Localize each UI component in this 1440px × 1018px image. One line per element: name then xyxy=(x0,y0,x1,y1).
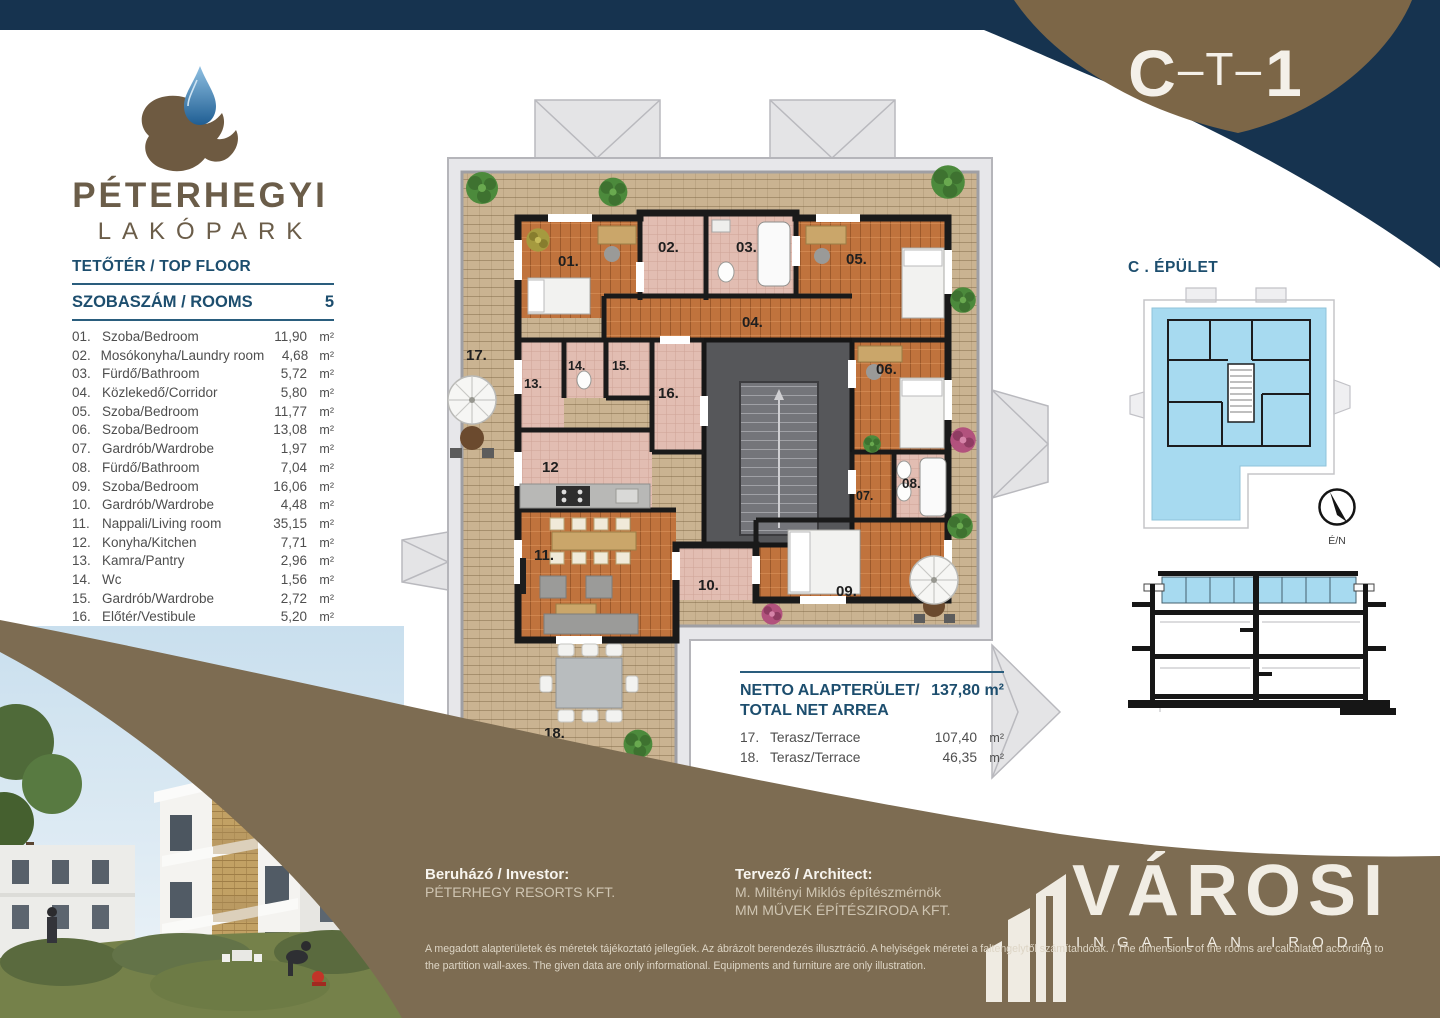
investor-label: Beruházó / Investor: xyxy=(425,866,725,883)
divider xyxy=(72,319,334,321)
room-row: 15.Gardrób/Wardrobe2,72m² xyxy=(72,591,334,610)
room-name: Fürdő/Bathroom xyxy=(102,366,261,381)
building-section xyxy=(1128,571,1396,715)
room-row: 08.Fürdő/Bathroom7,04m² xyxy=(72,460,334,479)
plan-label-05: 05. xyxy=(846,251,867,268)
varosi-wordmark: VÁROSI xyxy=(1072,850,1432,932)
room-row: 11.Nappali/Living room35,15m² xyxy=(72,516,334,535)
room-number: 14. xyxy=(72,572,102,587)
room-unit: m² xyxy=(308,349,334,363)
room-unit: m² xyxy=(307,386,334,400)
plan-label-15: 15. xyxy=(612,359,629,373)
plan-label-02: 02. xyxy=(658,239,679,256)
room-name: Szoba/Bedroom xyxy=(102,404,261,419)
room-area: 16,06 xyxy=(261,479,307,494)
plan-label-17: 17. xyxy=(466,347,487,364)
room-area: 4,68 xyxy=(264,348,308,363)
plan-label-01: 01. xyxy=(558,253,579,270)
room-number: 13. xyxy=(72,553,102,568)
room-name: Szoba/Bedroom xyxy=(102,329,261,344)
room-row: 01.Szoba/Bedroom11,90m² xyxy=(72,329,334,348)
terrace-row: 18.Terasz/Terrace46,35m² xyxy=(740,750,1004,770)
varosi-brand: VÁROSI INGATLAN IRODA xyxy=(1072,850,1432,951)
investor-block: Beruházó / Investor: PÉTERHEGY RESORTS K… xyxy=(425,866,725,901)
net-area-title: NETTO ALAPTERÜLET/ xyxy=(740,681,920,701)
room-area: 7,04 xyxy=(261,460,307,475)
disclaimer-line1: A megadott alapterületek és méretek tájé… xyxy=(425,941,1425,958)
room-area: 5,20 xyxy=(261,609,307,624)
divider xyxy=(740,671,1004,673)
room-unit: m² xyxy=(307,461,334,475)
terrace-number: 17. xyxy=(740,730,770,745)
net-area-panel: NETTO ALAPTERÜLET/ 137,80 m² TOTAL NET A… xyxy=(740,664,1004,769)
architect-block: Tervező / Architect: M. Miltényi Miklós … xyxy=(735,866,1055,919)
terrace-name: Terasz/Terrace xyxy=(770,750,931,765)
room-unit: m² xyxy=(307,573,334,587)
room-unit: m² xyxy=(307,442,334,456)
room-area: 2,72 xyxy=(261,591,307,606)
room-number: 04. xyxy=(72,385,102,400)
room-name: Közlekedő/Corridor xyxy=(102,385,261,400)
terrace-row: 17.Terasz/Terrace107,40m² xyxy=(740,730,1004,750)
plan-label-07: 07. xyxy=(856,489,873,503)
room-area: 1,56 xyxy=(261,572,307,587)
room-name: Gardrób/Wardrobe xyxy=(102,591,261,606)
room-area: 11,90 xyxy=(261,329,307,344)
room-row: 03.Fürdő/Bathroom5,72m² xyxy=(72,366,334,385)
net-area-title-en: TOTAL NET ARREA xyxy=(740,701,1004,721)
room-area: 35,15 xyxy=(261,516,307,531)
plan-label-03: 03. xyxy=(736,239,757,256)
room-area: 7,71 xyxy=(261,535,307,550)
room-area: 5,72 xyxy=(261,366,307,381)
room-name: Gardrób/Wardrobe xyxy=(102,497,261,512)
room-name: Előtér/Vestibule xyxy=(102,609,261,624)
room-number: 05. xyxy=(72,404,102,419)
room-unit: m² xyxy=(307,517,334,531)
rooms-count: 5 xyxy=(325,293,334,312)
unit-code-middle: –T– xyxy=(1176,42,1265,96)
disclaimer-line2: the partition wall-axes. The given data … xyxy=(425,958,1425,975)
divider xyxy=(72,283,334,285)
logo-subtitle: LAKÓPARK xyxy=(55,218,345,246)
room-02-laundry xyxy=(640,213,706,300)
room-row: 10.Gardrób/Wardrobe4,48m² xyxy=(72,497,334,516)
room-row: 09.Szoba/Bedroom16,06m² xyxy=(72,479,334,498)
logo-name: PÉTERHEGYI xyxy=(55,176,345,216)
building-heading: C . ÉPÜLET xyxy=(1128,259,1348,277)
room-unit: m² xyxy=(307,610,334,624)
room-list-panel: TETŐTÉR / TOP FLOOR SZOBASZÁM / ROOMS 5 … xyxy=(72,258,334,628)
room-area: 1,97 xyxy=(261,441,307,456)
unit-code: C –T– 1 xyxy=(1080,18,1350,128)
room-number: 08. xyxy=(72,460,102,475)
flyer-page: 01. 02. 03. 04. 05. 06. 07. 08. 09. 10. … xyxy=(0,0,1440,1018)
room-name: Wc xyxy=(102,572,261,587)
room-area: 13,08 xyxy=(261,422,307,437)
net-area-total: 137,80 m² xyxy=(931,681,1004,701)
room-name: Nappali/Living room xyxy=(102,516,261,531)
room-number: 03. xyxy=(72,366,102,381)
room-unit: m² xyxy=(307,592,334,606)
plan-label-12: 12 xyxy=(542,459,559,476)
room-area: 5,80 xyxy=(261,385,307,400)
stair-core xyxy=(704,340,852,545)
peterhegyi-logo: PÉTERHEGYI LAKÓPARK xyxy=(55,62,345,222)
room-row: 04.Közlekedő/Corridor5,80m² xyxy=(72,385,334,404)
room-number: 02. xyxy=(72,348,101,363)
investor-name: PÉTERHEGY RESORTS KFT. xyxy=(425,883,725,901)
room-area: 4,48 xyxy=(261,497,307,512)
architect-label: Tervező / Architect: xyxy=(735,866,1055,883)
room-area: 11,77 xyxy=(261,404,307,419)
plan-label-14: 14. xyxy=(568,359,585,373)
unit-code-number: 1 xyxy=(1265,35,1302,111)
terrace-area: 107,40 xyxy=(931,730,977,745)
room-number: 10. xyxy=(72,497,102,512)
room-rows: 01.Szoba/Bedroom11,90m² 02.Mosókonyha/La… xyxy=(72,329,334,628)
room-name: Szoba/Bedroom xyxy=(102,422,261,437)
rooms-heading-label: SZOBASZÁM / ROOMS xyxy=(72,293,253,312)
plan-label-16: 16. xyxy=(658,385,679,402)
room-name: Fürdő/Bathroom xyxy=(102,460,261,475)
compass-label: É/N xyxy=(1328,534,1346,547)
room-row: 07.Gardrób/Wardrobe1,97m² xyxy=(72,441,334,460)
room-name: Konyha/Kitchen xyxy=(102,535,261,550)
plan-label-06: 06. xyxy=(876,361,897,378)
terrace-number: 18. xyxy=(740,750,770,765)
net-area-title-row: NETTO ALAPTERÜLET/ 137,80 m² xyxy=(740,681,1004,701)
rooms-heading: SZOBASZÁM / ROOMS 5 xyxy=(72,293,334,312)
room-row: 13.Kamra/Pantry2,96m² xyxy=(72,553,334,572)
room-number: 07. xyxy=(72,441,102,456)
room-unit: m² xyxy=(307,536,334,550)
architect-company: MM MŰVEK ÉPÍTÉSZIRODA KFT. xyxy=(735,901,1055,919)
plan-label-09: 09. xyxy=(836,583,857,600)
room-number: 06. xyxy=(72,422,102,437)
room-area: 2,96 xyxy=(261,553,307,568)
room-row: 14.Wc1,56m² xyxy=(72,572,334,591)
room-07-wardrobe xyxy=(852,452,894,520)
room-number: 09. xyxy=(72,479,102,494)
room-unit: m² xyxy=(307,554,334,568)
plan-label-10: 10. xyxy=(698,577,719,594)
plan-label-08: 08. xyxy=(902,476,921,491)
terrace-name: Terasz/Terrace xyxy=(770,730,931,745)
architect-name: M. Miltényi Miklós építészmérnök xyxy=(735,883,1055,901)
building-c-miniplan: É/N xyxy=(1130,288,1355,547)
terrace-unit: m² xyxy=(977,731,1004,745)
room-unit: m² xyxy=(307,330,334,344)
unit-code-letter: C xyxy=(1128,35,1176,111)
room-unit: m² xyxy=(307,423,334,437)
disclaimer: A megadott alapterületek és méretek tájé… xyxy=(425,941,1425,974)
room-name: Gardrób/Wardrobe xyxy=(102,441,261,456)
room-row: 16.Előtér/Vestibule5,20m² xyxy=(72,609,334,628)
room-row: 02.Mosókonyha/Laundry room4,68m² xyxy=(72,348,334,367)
room-row: 12.Konyha/Kitchen7,71m² xyxy=(72,535,334,554)
room-04-corridor xyxy=(604,296,852,340)
terrace-area: 46,35 xyxy=(931,750,977,765)
floor-heading: TETŐTÉR / TOP FLOOR xyxy=(72,258,334,276)
room-name: Mosókonyha/Laundry room xyxy=(101,348,265,363)
compass-icon xyxy=(1320,490,1355,525)
room-row: 06.Szoba/Bedroom13,08m² xyxy=(72,422,334,441)
plan-label-04: 04. xyxy=(742,314,763,331)
room-number: 11. xyxy=(72,516,102,531)
room-unit: m² xyxy=(307,480,334,494)
logo-icon-space xyxy=(55,62,345,174)
plan-label-11: 11. xyxy=(534,547,554,564)
plan-label-13: 13. xyxy=(524,376,542,391)
room-number: 12. xyxy=(72,535,102,550)
room-unit: m² xyxy=(307,367,334,381)
room-name: Szoba/Bedroom xyxy=(102,479,261,494)
room-unit: m² xyxy=(307,498,334,512)
terrace-unit: m² xyxy=(977,751,1004,765)
net-area-rows: 17.Terasz/Terrace107,40m² 18.Terasz/Terr… xyxy=(740,730,1004,769)
room-number: 01. xyxy=(72,329,102,344)
room-unit: m² xyxy=(307,405,334,419)
room-number: 16. xyxy=(72,609,102,624)
room-number: 15. xyxy=(72,591,102,606)
room-name: Kamra/Pantry xyxy=(102,553,261,568)
room-row: 05.Szoba/Bedroom11,77m² xyxy=(72,404,334,423)
